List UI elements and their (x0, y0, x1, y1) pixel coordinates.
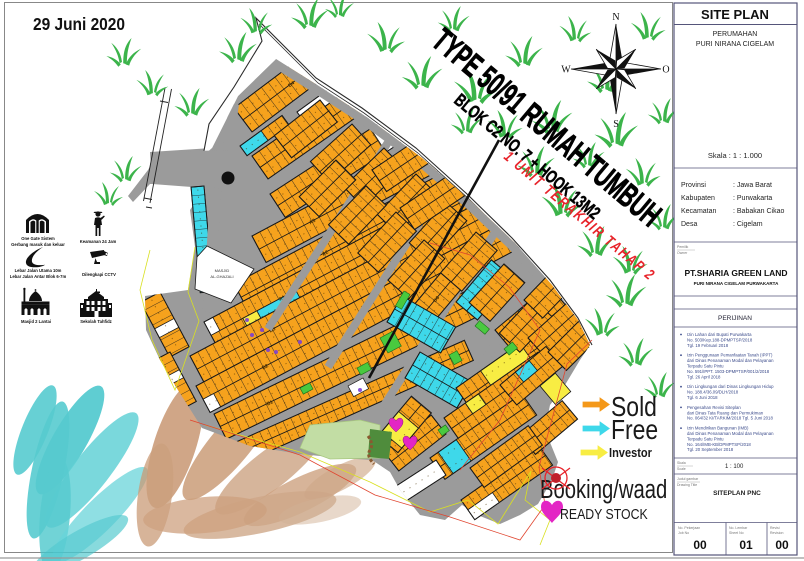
svg-text:: Purwakarta: : Purwakarta (733, 195, 772, 202)
svg-text:Dilengkapi CCTV: Dilengkapi CCTV (82, 272, 116, 277)
svg-text:Desa: Desa (681, 221, 697, 228)
svg-text:Tgl. 19 Februari 2018: Tgl. 19 Februari 2018 (687, 343, 729, 348)
svg-text:Free: Free (611, 415, 658, 446)
svg-text:Judul gambar: Judul gambar (677, 477, 699, 481)
svg-text:Investor: Investor (609, 445, 652, 460)
svg-text:: Jawa Barat: : Jawa Barat (733, 182, 772, 189)
svg-text:No. 064/32 KI/TARKIM/2018 Tgl.: No. 064/32 KI/TARKIM/2018 Tgl. 5 Juni 20… (687, 416, 773, 421)
svg-text:Skala : 1 : 1.000: Skala : 1 : 1.000 (708, 151, 762, 160)
svg-text:Pengesahan Revisi Siteplan: Pengesahan Revisi Siteplan (687, 405, 741, 410)
svg-text:Lebar Jalan Utama 10m: Lebar Jalan Utama 10m (15, 268, 62, 273)
svg-text:One Gate Sistem: One Gate Sistem (21, 236, 55, 241)
svg-text:MASJID: MASJID (215, 268, 230, 273)
svg-text:Masjid 2 Lantai: Masjid 2 Lantai (21, 319, 51, 324)
svg-text:01: 01 (739, 538, 753, 552)
svg-text:1 : 100: 1 : 100 (725, 464, 744, 470)
svg-text:PERIJINAN: PERIJINAN (718, 315, 752, 322)
svg-text:Sheet No: Sheet No (729, 531, 744, 535)
svg-text:Tgl. 6 Juni 2018: Tgl. 6 Juni 2018 (687, 395, 718, 400)
svg-text:Provinsi: Provinsi (681, 182, 706, 189)
svg-text:No. 503/Kep.188-DPMPTSP/2018: No. 503/Kep.188-DPMPTSP/2018 (687, 337, 753, 342)
svg-text:W: W (561, 65, 571, 76)
svg-text:No. Pekerjaan: No. Pekerjaan (678, 526, 700, 530)
svg-text:No. 188.4/36.09/DLH/2018: No. 188.4/36.09/DLH/2018 (687, 390, 739, 395)
svg-text:No. 164/IMB-KB/DPMPTSP/2018: No. 164/IMB-KB/DPMPTSP/2018 (687, 442, 751, 447)
svg-text:READY STOCK: READY STOCK (560, 506, 648, 522)
svg-text:Pemilik: Pemilik (677, 245, 689, 249)
svg-text:: Babakan Cikao: : Babakan Cikao (733, 208, 784, 215)
svg-text:Lebar Jalan Antar Blok 6-7m: Lebar Jalan Antar Blok 6-7m (10, 274, 67, 279)
svg-text:: Cigelam: : Cigelam (733, 221, 763, 228)
svg-text:Revision: Revision (770, 531, 783, 535)
svg-text:SITE PLAN: SITE PLAN (701, 7, 769, 22)
svg-text:dari Dinas Penanaman Modal dan: dari Dinas Penanaman Modal dan Pelayanan (687, 431, 774, 436)
svg-text:Izin Mendirikan Bangunan (IMB): Izin Mendirikan Bangunan (IMB) (687, 426, 749, 431)
svg-text:Revisi: Revisi (770, 526, 780, 530)
svg-text:dari Dinas Penanaman Modal dan: dari Dinas Penanaman Modal dan Pelayanan (687, 358, 774, 363)
svg-text:Izin Lahan dari Bupati Purwaka: Izin Lahan dari Bupati Purwakarta (687, 332, 752, 337)
svg-text:Skala: Skala (677, 461, 686, 465)
svg-text:Terpadu Satu Pintu: Terpadu Satu Pintu (687, 436, 724, 441)
svg-text:PT.SHARIA GREEN LAND: PT.SHARIA GREEN LAND (684, 268, 787, 278)
svg-text:O: O (662, 65, 669, 76)
svg-text:AL-GHAZALI: AL-GHAZALI (210, 274, 233, 279)
svg-text:dari Dinas Tata Ruang dan Perm: dari Dinas Tata Ruang dan Permukiman (687, 410, 764, 415)
svg-text:No. 591/IPPT. 1503-DPMPTSP/001: No. 591/IPPT. 1503-DPMPTSP/001/2/2018 (687, 369, 770, 374)
svg-text:SITEPLAN PNC: SITEPLAN PNC (713, 490, 761, 497)
svg-text:Izin Lingkungan dari Dinas Lin: Izin Lingkungan dari Dinas Lingkungan Hi… (687, 384, 774, 389)
svg-text:Keamanan 24 Jam: Keamanan 24 Jam (80, 239, 117, 244)
svg-text:N: N (612, 12, 619, 23)
svg-text:Kecamatan: Kecamatan (681, 208, 717, 215)
svg-text:Gerbang masuk dan keluar: Gerbang masuk dan keluar (11, 242, 65, 247)
svg-text:Tgl. 26 April 2018: Tgl. 26 April 2018 (687, 374, 721, 379)
svg-text:Sekolah Tahfidz: Sekolah Tahfidz (80, 319, 112, 324)
svg-text:PURI NIRANA CIGELAM: PURI NIRANA CIGELAM (696, 41, 774, 48)
svg-text:No. Lembar: No. Lembar (729, 526, 748, 530)
svg-text:00: 00 (693, 538, 707, 552)
svg-text:Terpadu Satu Pintu: Terpadu Satu Pintu (687, 364, 724, 369)
svg-text:PURI NIRANA CIGELAM PURWAKARTA: PURI NIRANA CIGELAM PURWAKARTA (694, 281, 779, 286)
svg-text:Izin Penggunaan Pemanfaatan Ta: Izin Penggunaan Pemanfaatan Tanah (IPPT) (687, 353, 773, 358)
svg-text:Owner: Owner (677, 251, 688, 255)
svg-text:Scale: Scale (677, 467, 686, 471)
svg-text:Kabupaten: Kabupaten (681, 195, 715, 202)
svg-text:Drawing Title: Drawing Title (677, 483, 697, 487)
svg-text:Job No: Job No (678, 531, 689, 535)
svg-text:S: S (613, 119, 619, 130)
svg-text:PERUMAHAN: PERUMAHAN (713, 31, 758, 38)
svg-text:00: 00 (775, 538, 789, 552)
svg-text:29 Juni 2020: 29 Juni 2020 (33, 14, 125, 34)
svg-text:Tgl. 20 September 2018: Tgl. 20 September 2018 (687, 447, 734, 452)
